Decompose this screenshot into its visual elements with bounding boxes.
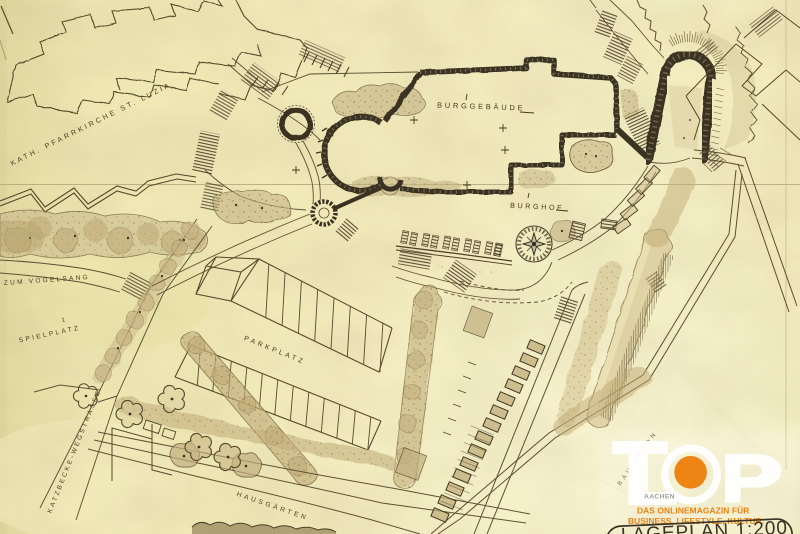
svg-text:AACHEN: AACHEN — [644, 494, 675, 501]
svg-text:DAS ONLINEMAGAZIN FÜR: DAS ONLINEMAGAZIN FÜR — [637, 506, 749, 516]
